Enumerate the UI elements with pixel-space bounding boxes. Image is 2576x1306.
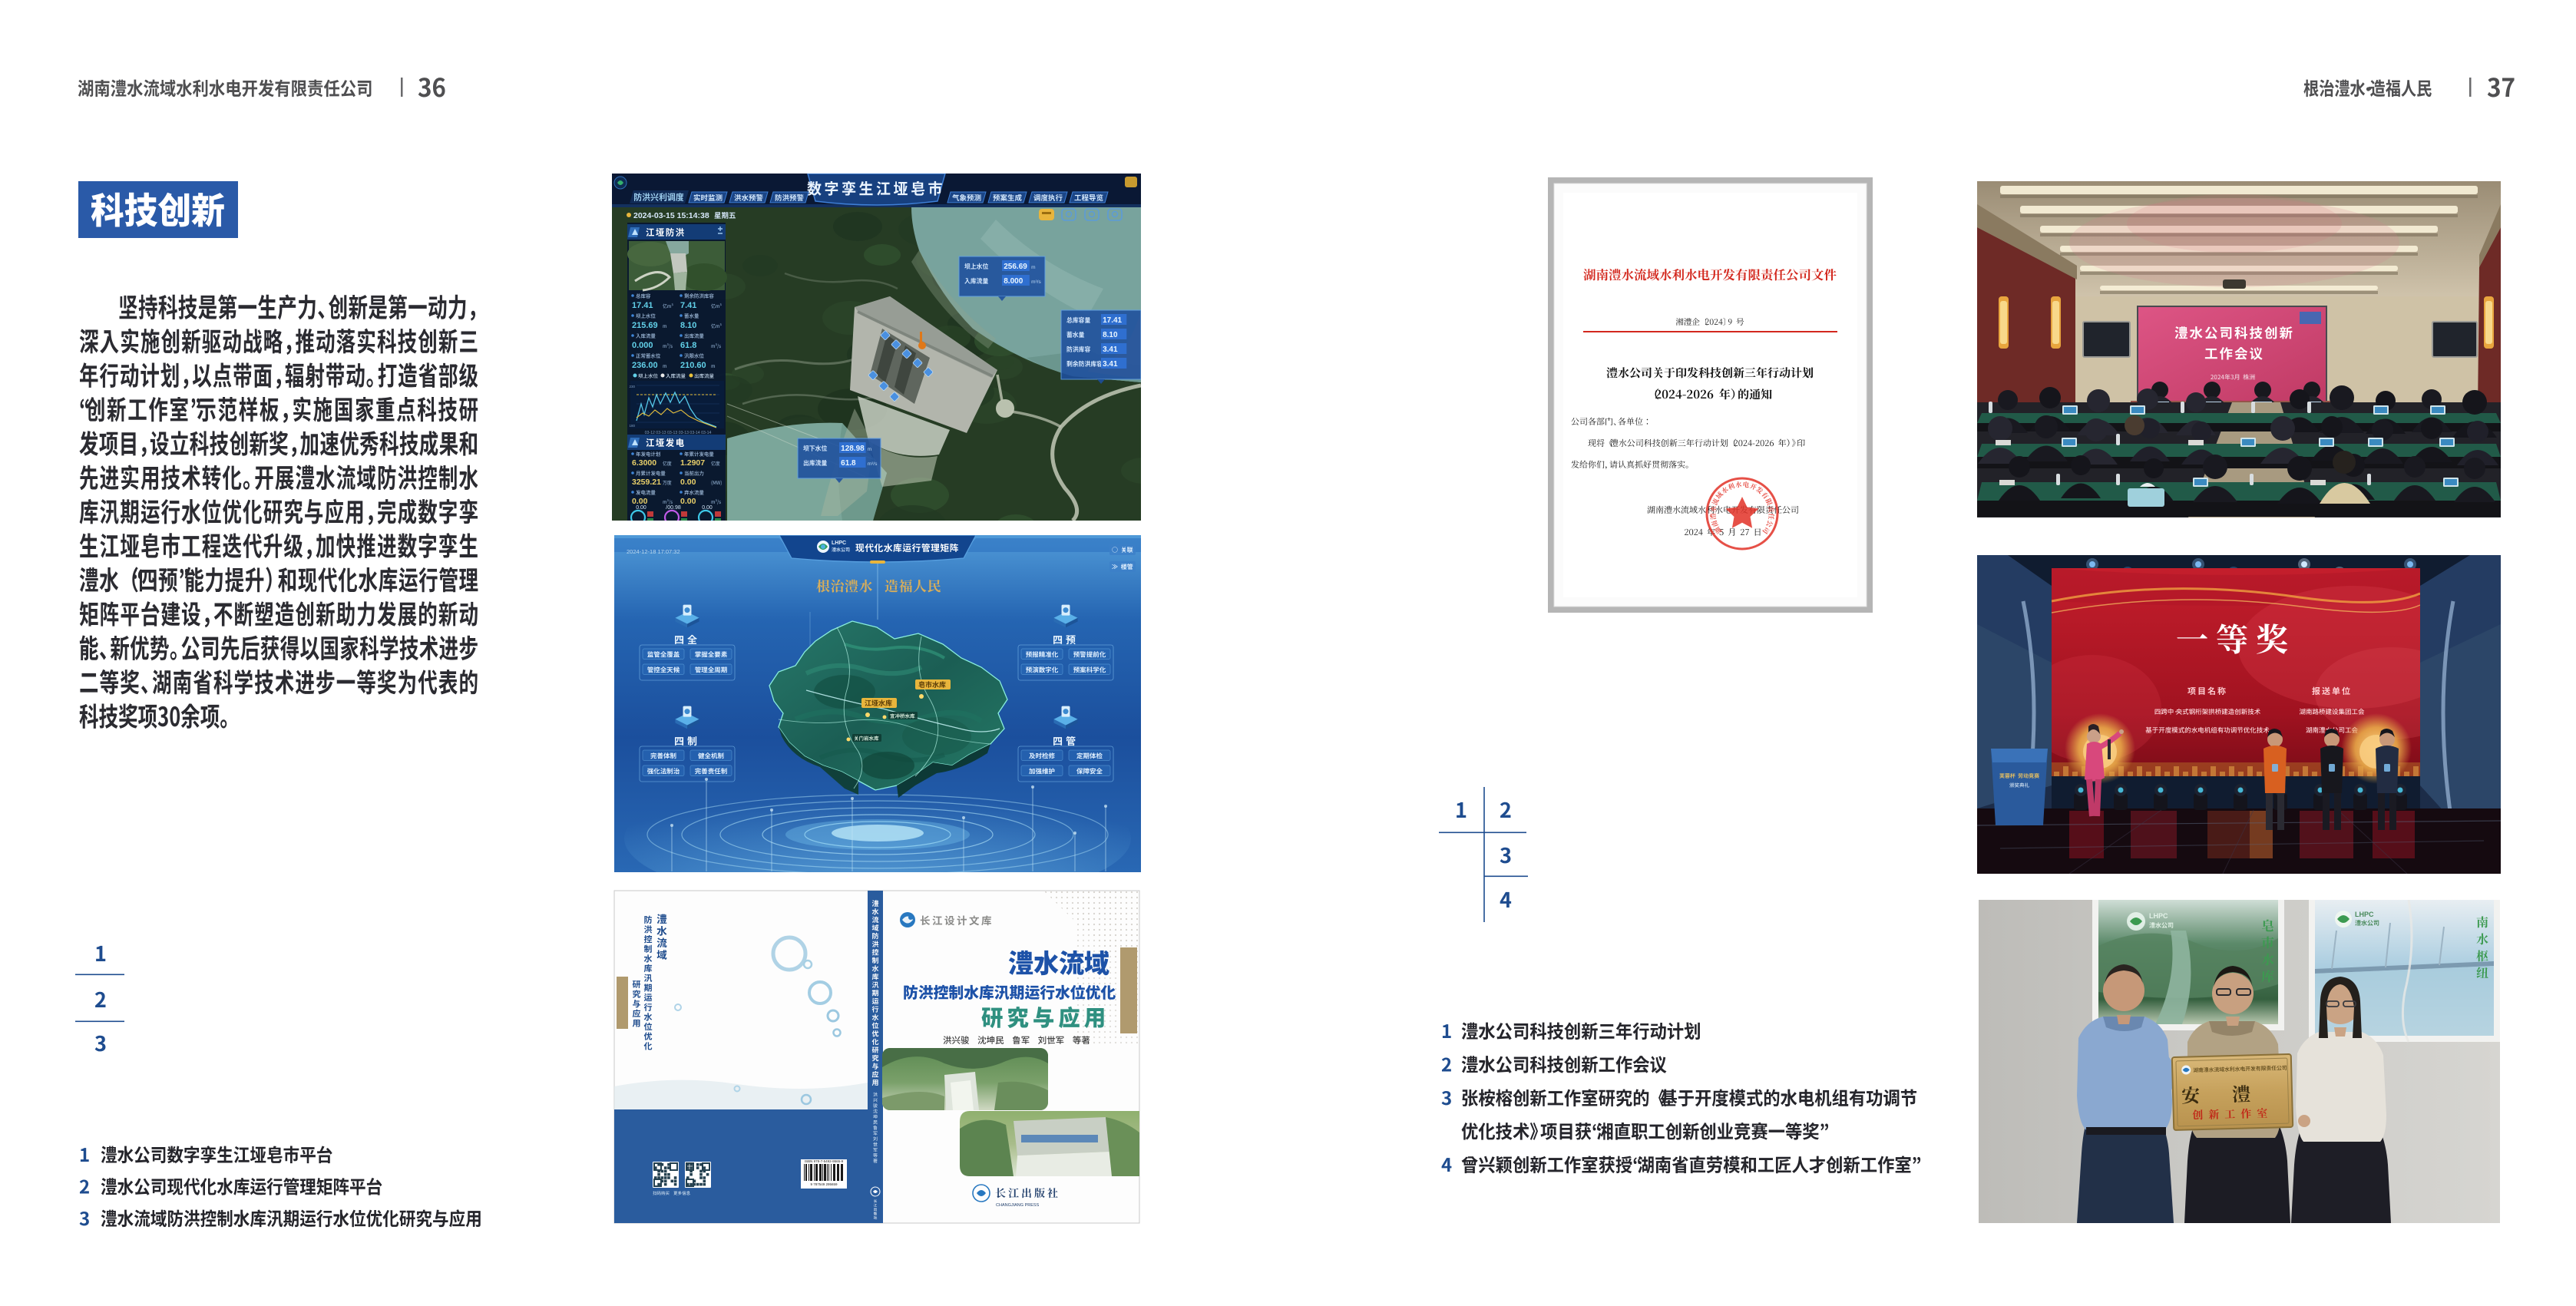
- svg-text:1.2907: 1.2907: [680, 458, 705, 468]
- svg-text:3.41: 3.41: [1103, 360, 1118, 369]
- svg-text:61.8: 61.8: [680, 341, 696, 350]
- svg-text:8.10: 8.10: [680, 321, 696, 330]
- svg-text:m: m: [1031, 265, 1035, 270]
- svg-text:0.000: 0.000: [632, 341, 653, 350]
- svg-text:8.10: 8.10: [1103, 331, 1118, 339]
- svg-text:2024-03-15 15:14:38: 2024-03-15 15:14:38: [633, 211, 709, 220]
- svg-text:0.00: 0.00: [680, 478, 696, 487]
- svg-text:210.60: 210.60: [680, 361, 706, 370]
- svg-text:LHPC: LHPC: [2149, 912, 2168, 920]
- svg-text:0.00: 0.00: [702, 505, 713, 511]
- svg-text:236.00: 236.00: [632, 361, 658, 370]
- svg-text:17.41: 17.41: [632, 301, 653, 310]
- svg-text:3.41: 3.41: [1103, 346, 1118, 354]
- svg-text:215.69: 215.69: [632, 321, 658, 330]
- svg-text:256.69: 256.69: [1004, 263, 1027, 271]
- svg-text:6.3000: 6.3000: [632, 458, 656, 468]
- svg-text:180: 180: [629, 424, 635, 428]
- svg-text:m³/s: m³/s: [1031, 279, 1041, 285]
- svg-text:2024-12-18 17:07:32: 2024-12-18 17:07:32: [627, 548, 680, 555]
- svg-text:230: 230: [629, 385, 635, 388]
- svg-text:0.00: 0.00: [680, 497, 696, 506]
- svg-text:LHPC: LHPC: [832, 541, 846, 546]
- svg-text:9 787549 295659: 9 787549 295659: [810, 1182, 838, 1186]
- svg-text:m³/s: m³/s: [868, 461, 878, 467]
- svg-text:17.41: 17.41: [1103, 316, 1122, 325]
- svg-text:7.41: 7.41: [680, 301, 696, 310]
- svg-text:61.8: 61.8: [841, 459, 856, 468]
- svg-text:/00.98: /00.98: [666, 505, 681, 511]
- svg-text:3259.21: 3259.21: [632, 478, 661, 487]
- svg-text:m: m: [868, 447, 871, 452]
- svg-text:8.000: 8.000: [1004, 277, 1023, 286]
- svg-text:128.98: 128.98: [841, 445, 865, 453]
- svg-text:LHPC: LHPC: [2355, 911, 2374, 918]
- svg-text:ISBN 978-7-5492-9565-9: ISBN 978-7-5492-9565-9: [805, 1159, 844, 1163]
- svg-text:CHANGJIANG PRESS: CHANGJIANG PRESS: [996, 1203, 1040, 1208]
